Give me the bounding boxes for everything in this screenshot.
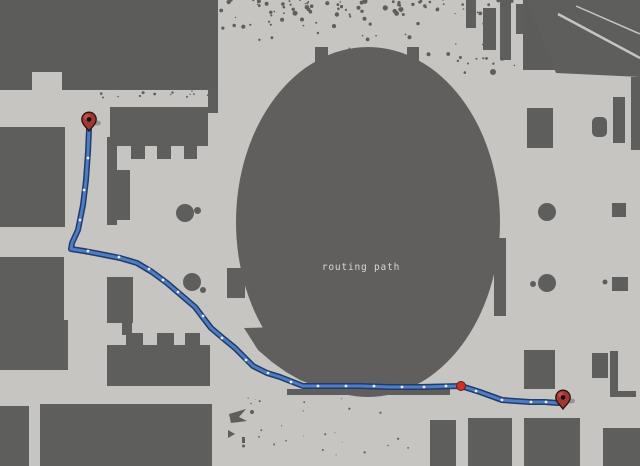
map-speckle <box>310 4 314 8</box>
route-waypoint-dot <box>290 381 293 384</box>
map-speckle <box>517 13 521 17</box>
map-shape <box>592 353 608 378</box>
route-waypoint-dot <box>79 219 82 222</box>
map-shape <box>242 445 245 448</box>
map-speckle <box>250 403 251 404</box>
map-shape <box>468 418 512 466</box>
route-waypoint-dot <box>87 250 90 253</box>
map-speckle <box>369 23 372 26</box>
map-speckle <box>317 32 319 34</box>
route-waypoint-dot <box>501 399 504 402</box>
map-speckle <box>345 9 347 11</box>
map-shape <box>126 333 143 347</box>
map-speckle <box>241 25 245 29</box>
route-waypoint-dot <box>177 291 180 294</box>
map-speckle <box>337 3 340 6</box>
map-speckle <box>418 1 421 4</box>
map-speckle <box>408 35 412 39</box>
map-speckle <box>482 57 484 59</box>
map-speckle <box>325 1 329 5</box>
map-speckle <box>270 14 272 16</box>
map-speckle <box>336 455 337 456</box>
map-shape <box>500 0 511 60</box>
map-speckle <box>289 0 291 2</box>
map-speckle <box>362 35 364 37</box>
map-viewport[interactable]: routing path <box>0 0 640 466</box>
map-speckle <box>488 9 490 11</box>
map-speckle <box>482 44 484 46</box>
pin-center-dot <box>87 117 92 122</box>
map-speckle <box>337 8 340 11</box>
route-waypoint-dot <box>87 157 90 160</box>
map-shape <box>0 320 68 370</box>
map-speckle <box>405 34 407 36</box>
map-shape <box>242 437 245 443</box>
map-speckle <box>102 97 104 99</box>
map-speckle <box>265 2 269 6</box>
map-speckle <box>387 445 388 446</box>
map-speckle <box>363 17 367 21</box>
map-speckle <box>221 27 224 30</box>
map-shape <box>184 146 197 159</box>
map-speckle <box>467 63 469 65</box>
map-speckle <box>477 12 479 14</box>
map-speckle <box>300 18 304 22</box>
map-speckle <box>399 7 403 11</box>
map-speckle <box>459 56 462 59</box>
map-speckle <box>260 429 262 431</box>
map-speckle <box>259 400 261 402</box>
map-shape <box>430 420 456 466</box>
map-shape <box>176 204 194 222</box>
map-speckle <box>442 431 444 433</box>
map-speckle <box>360 10 363 13</box>
map-speckle <box>273 11 275 13</box>
map-speckle <box>392 0 395 3</box>
map-shape <box>407 47 419 62</box>
map-speckle <box>455 13 456 14</box>
map-speckle <box>292 8 295 11</box>
route-waypoint-dot <box>221 337 224 340</box>
map-speckle <box>305 3 306 4</box>
map-speckle <box>309 10 313 14</box>
route-waypoint-dot <box>545 401 548 404</box>
map-speckle <box>257 4 258 5</box>
route-waypoint-dot <box>118 256 121 259</box>
map-speckle <box>153 93 156 96</box>
map-speckle <box>482 22 484 24</box>
map-speckle <box>478 12 482 16</box>
map-speckle <box>303 436 304 437</box>
route-waypoint-dot <box>245 359 248 362</box>
map-speckle <box>485 57 488 60</box>
map-speckle <box>476 58 478 60</box>
map-speckle <box>340 5 343 8</box>
map-speckle <box>139 95 141 97</box>
map-shape <box>612 277 628 291</box>
map-speckle <box>402 13 405 16</box>
map-shape <box>483 8 496 50</box>
map-shape <box>0 127 65 227</box>
map-speckle <box>305 5 310 10</box>
map-speckle <box>364 451 366 453</box>
map-shape <box>524 418 580 466</box>
route-waypoint-dot <box>162 279 165 282</box>
map-speckle <box>332 24 336 28</box>
map-speckle <box>393 9 397 13</box>
map-speckle <box>407 447 409 449</box>
map-speckle <box>227 0 231 4</box>
pin-center-dot <box>561 395 566 400</box>
map-speckle <box>399 4 402 7</box>
route-via-dot[interactable] <box>457 382 466 391</box>
map-shape <box>0 406 29 466</box>
route-waypoint-dot <box>83 189 86 192</box>
map-speckle <box>186 96 188 98</box>
map-speckle <box>391 53 393 55</box>
map-speckle <box>255 399 256 400</box>
map-shape <box>494 238 506 316</box>
map-speckle <box>191 90 193 92</box>
map-shape <box>315 47 328 62</box>
map-speckle <box>258 436 260 438</box>
map-speckle <box>492 63 494 65</box>
map-shape <box>185 333 200 347</box>
map-speckle <box>455 43 456 44</box>
map-shape <box>612 203 626 217</box>
route-waypoint-dot <box>202 315 205 318</box>
map-speckle <box>130 86 132 88</box>
map-shape <box>516 4 524 34</box>
map-speckle <box>193 93 195 95</box>
route-waypoint-dot <box>373 385 376 388</box>
map-speckle <box>357 6 361 10</box>
map-speckle <box>315 22 317 24</box>
map-speckle <box>335 12 339 16</box>
map-speckle <box>142 91 145 94</box>
map-shape <box>110 170 130 220</box>
map-speckle <box>274 443 275 444</box>
map-shape <box>466 0 476 28</box>
map-speckle <box>423 4 426 7</box>
map-speckle <box>501 58 504 61</box>
map-speckle <box>446 52 450 56</box>
map-speckle <box>436 8 440 12</box>
map-speckle <box>340 1 342 3</box>
map-speckle <box>249 24 251 26</box>
route-waypoint-dot <box>267 372 270 375</box>
map-shape <box>227 268 245 298</box>
map-speckle <box>190 94 191 95</box>
map-speckle <box>117 96 119 98</box>
occupancy-grid-map[interactable]: routing path <box>0 0 640 466</box>
map-shape <box>524 350 555 389</box>
map-speckle <box>258 39 260 41</box>
map-speckle <box>303 410 304 411</box>
map-shape <box>631 77 640 150</box>
map-shape <box>32 72 62 90</box>
map-shape <box>538 203 556 221</box>
map-speckle <box>235 17 236 18</box>
map-shape <box>107 277 133 323</box>
map-speckle <box>334 432 335 433</box>
route-waypoint-dot <box>423 386 426 389</box>
map-speckle <box>307 1 309 3</box>
map-speckle <box>303 401 305 403</box>
map-shape <box>613 97 625 143</box>
map-shape <box>0 257 64 327</box>
map-speckle <box>366 38 370 42</box>
map-speckle <box>171 91 173 93</box>
map-speckle <box>170 94 171 95</box>
map-speckle <box>281 425 282 426</box>
map-speckle <box>348 408 350 410</box>
route-waypoint-dot <box>345 385 348 388</box>
map-speckle <box>322 449 324 451</box>
map-speckle <box>290 4 292 6</box>
route-waypoint-dot <box>317 385 320 388</box>
map-speckle <box>429 1 432 4</box>
map-shape <box>603 280 608 285</box>
map-speckle <box>427 52 431 56</box>
map-shape <box>250 410 254 414</box>
map-speckle <box>457 60 459 62</box>
map-speckle <box>268 21 270 23</box>
map-shape <box>538 274 556 292</box>
map-shape <box>122 320 132 335</box>
map-speckle <box>349 48 351 50</box>
map-speckle <box>514 65 516 67</box>
map-shape <box>110 107 208 146</box>
map-speckle <box>397 438 399 440</box>
map-speckle <box>349 13 351 15</box>
map-speckle <box>416 22 419 25</box>
map-speckle <box>324 433 326 435</box>
map-speckle <box>283 6 286 9</box>
map-speckle <box>341 398 342 399</box>
map-speckle <box>303 25 305 27</box>
map-shape <box>530 281 536 287</box>
map-speckle <box>207 94 209 96</box>
route-waypoint-dot <box>148 268 151 271</box>
map-shape <box>40 404 212 466</box>
map-shape <box>131 146 145 159</box>
map-speckle <box>293 11 298 16</box>
map-speckle <box>383 5 388 10</box>
map-speckle <box>100 92 103 95</box>
map-shape <box>592 117 607 137</box>
map-speckle <box>233 24 236 27</box>
map-speckle <box>270 24 272 26</box>
map-shape <box>200 287 206 293</box>
map-shape <box>183 273 201 291</box>
map-shape <box>527 0 640 77</box>
map-shape <box>610 351 618 397</box>
map-speckle <box>375 35 377 37</box>
map-shape <box>610 391 636 397</box>
map-shape <box>527 108 553 148</box>
route-waypoint-dot <box>475 390 478 393</box>
map-speckle <box>283 12 285 14</box>
map-speckle <box>285 440 287 442</box>
route-waypoint-dot <box>530 401 533 404</box>
map-speckle <box>248 397 249 398</box>
map-shape <box>603 428 640 466</box>
map-speckle <box>219 9 223 13</box>
map-speckle <box>443 3 445 5</box>
map-speckle <box>461 3 464 6</box>
map-shape <box>107 345 210 386</box>
map-shape <box>157 333 174 347</box>
map-speckle <box>411 3 414 6</box>
map-speckle <box>463 8 465 10</box>
map-speckle <box>487 3 490 6</box>
map-speckle <box>349 15 351 17</box>
route-waypoint-dot <box>445 385 448 388</box>
map-speckle <box>258 4 261 7</box>
map-shape <box>194 207 201 214</box>
map-speckle <box>269 11 272 14</box>
map-speckle <box>342 442 343 443</box>
map-speckle <box>280 18 284 22</box>
map-speckle <box>464 71 467 74</box>
map-speckle <box>379 412 381 414</box>
map-shape <box>157 146 171 159</box>
map-shape <box>208 88 218 113</box>
route-label: routing path <box>322 262 400 273</box>
map-shape <box>490 69 496 75</box>
route-waypoint-dot <box>401 386 404 389</box>
map-speckle <box>281 2 285 6</box>
map-speckle <box>271 36 274 39</box>
